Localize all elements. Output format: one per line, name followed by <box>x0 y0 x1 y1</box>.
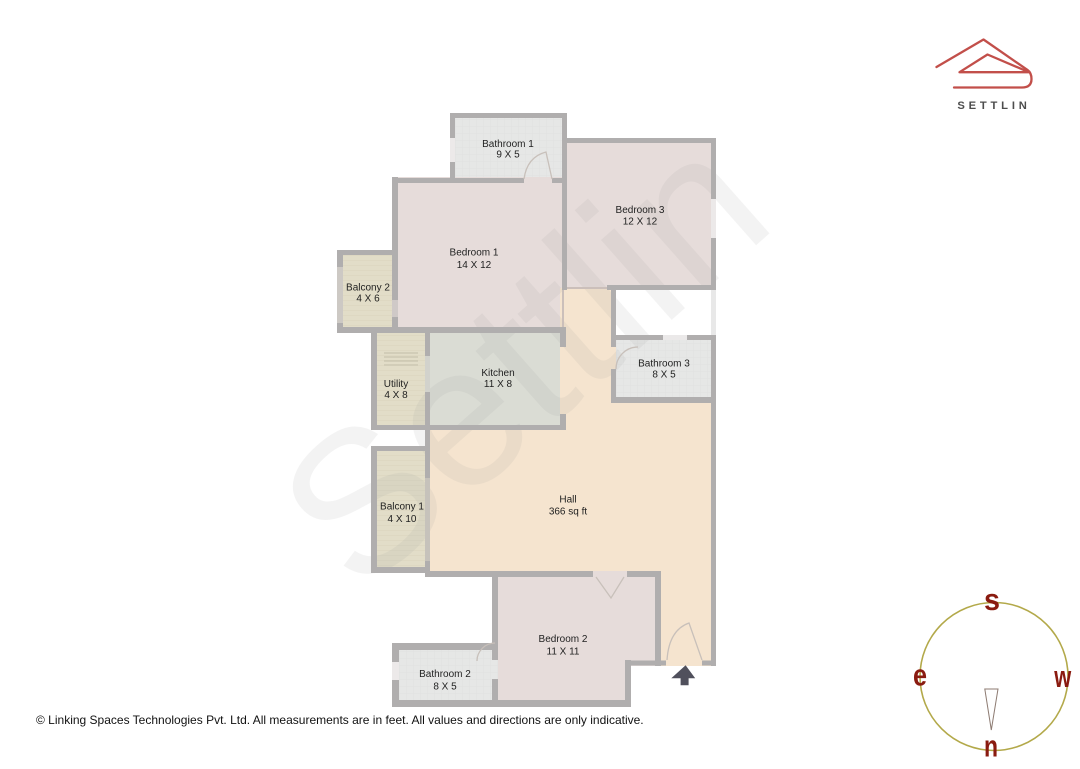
svg-text:© Linking Spaces Technologies: © Linking Spaces Technologies Pvt. Ltd. … <box>36 713 644 727</box>
svg-text:Balcony 1: Balcony 1 <box>380 502 424 513</box>
svg-text:Bathroom 1: Bathroom 1 <box>482 139 534 150</box>
svg-text:4 X 10: 4 X 10 <box>388 514 417 525</box>
svg-text:366 sq ft: 366 sq ft <box>549 507 588 518</box>
svg-text:Bedroom 1: Bedroom 1 <box>450 248 499 259</box>
svg-text:4 X 6: 4 X 6 <box>356 294 380 305</box>
svg-text:4 X 8: 4 X 8 <box>384 390 408 401</box>
svg-text:Utility: Utility <box>384 379 408 390</box>
svg-text:e: e <box>913 658 927 693</box>
svg-text:Hall: Hall <box>559 495 576 506</box>
svg-text:Balcony 2: Balcony 2 <box>346 283 390 294</box>
svg-text:n: n <box>984 729 998 764</box>
svg-text:8 X 5: 8 X 5 <box>433 682 457 693</box>
svg-text:Kitchen: Kitchen <box>481 368 514 379</box>
svg-text:s: s <box>984 582 1000 617</box>
svg-text:Bathroom 3: Bathroom 3 <box>638 359 690 370</box>
svg-text:14 X 12: 14 X 12 <box>457 260 492 271</box>
svg-text:8 X 5: 8 X 5 <box>652 370 676 381</box>
svg-text:9 X 5: 9 X 5 <box>496 150 520 161</box>
svg-text:Bedroom 2: Bedroom 2 <box>539 634 588 645</box>
svg-text:w: w <box>1053 659 1071 694</box>
svg-text:11 X 8: 11 X 8 <box>484 379 513 390</box>
svg-text:12 X 12: 12 X 12 <box>623 217 658 228</box>
svg-text:SETTLIN: SETTLIN <box>957 100 1030 112</box>
svg-text:Bedroom 3: Bedroom 3 <box>616 205 665 216</box>
svg-text:Bathroom 2: Bathroom 2 <box>419 669 471 680</box>
svg-text:11 X 11: 11 X 11 <box>547 647 580 658</box>
